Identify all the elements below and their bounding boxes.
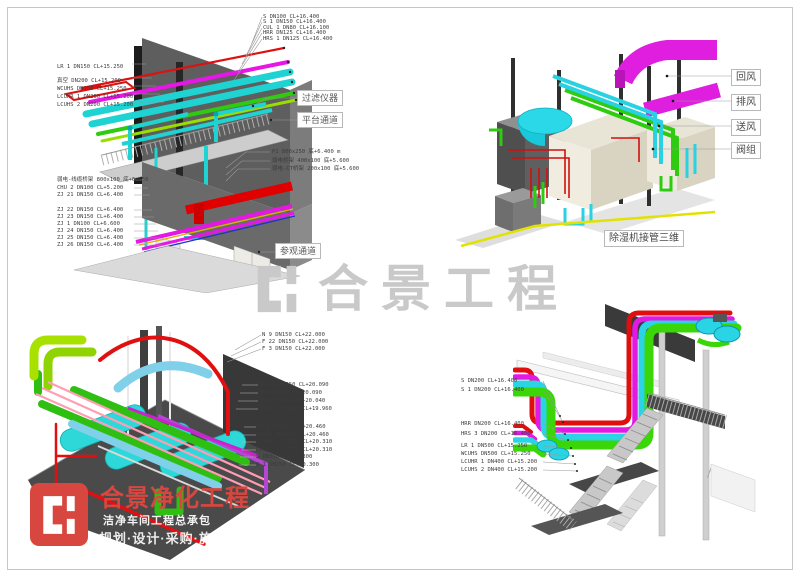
company-logo xyxy=(30,483,88,546)
columns xyxy=(659,326,709,540)
callout-valve-group: 阀组 xyxy=(731,142,761,159)
pipe-label: HRR DN200 CL+16.400 xyxy=(461,421,524,427)
pipe-label: F 3 DN150 CL+22.000 xyxy=(262,346,325,352)
pipe-label: WCUHS DN150 CL+15.250 xyxy=(57,86,127,92)
pipe-label: P1 800x250 底+6.400 m xyxy=(272,149,340,155)
pipe-label: LCUHR 1 DN700 CL+20.310 xyxy=(256,439,332,445)
pipe-label: ZJ 23 DN150 CL+6.400 xyxy=(57,214,123,220)
pipe-label: LCUHR 1 DN200 CL+15.200 xyxy=(57,94,133,100)
pipe-label: ZJ 26 DN150 CL+6.400 xyxy=(57,242,123,248)
pipe-label: LCUHS 2 DN400 CL+15.200 xyxy=(461,467,537,473)
pipe-label: LR 1 DN1000 CL+20.460 xyxy=(256,424,326,430)
company-name: 合景净化工程 xyxy=(100,478,250,513)
pipe-label: HRS 3 DN200 CL+16.400 xyxy=(461,431,531,437)
yellow-green-pipes xyxy=(34,340,92,386)
pipe-label: 弱电-线缆桥架 800x100 底+6.650 xyxy=(57,177,148,183)
pipe-label: LR 1 DN500 CL+15.250 xyxy=(461,443,527,449)
caption-dehumidifier-piping: 除湿机接管三维 xyxy=(604,230,684,247)
pipe-label: WCUHS DN1000 CL+20.460 xyxy=(256,432,329,438)
watermark-text: 合景工程 xyxy=(318,263,570,315)
pipe-label: ZJ 21 DN150 CL+6.400 xyxy=(57,192,123,198)
watermark: 合景工程 xyxy=(250,262,570,316)
pipe-label: ZJ 24 DN150 CL+6.400 xyxy=(57,228,123,234)
pipe-label: ZJ 1 DN100 CL+6.600 xyxy=(57,221,120,227)
pipe-label: HRS 3 DN250 CL+20.090 xyxy=(259,382,329,388)
pipe-label: S DN200 CL+16.400 xyxy=(461,378,517,384)
pipe-label: ZJ 22 DN150 CL+6.400 xyxy=(57,207,123,213)
pipe-label: 弱电-CT桥架 200x100 底+5.600 xyxy=(272,166,359,172)
callout-visitor-walkway: 参观通道 xyxy=(275,243,321,259)
company-subtitle: 洁净车间工程总承包 xyxy=(103,512,211,528)
pipe-label: S DN350 CL+20.300 xyxy=(256,454,312,460)
pipe-label: LCUHS 2 DN700 CL+20.310 xyxy=(256,447,332,453)
company-services: 规划·设计·采购·施工·维保 xyxy=(99,528,260,547)
pipe-label: 弱电桥架 400x100 底+5.600 xyxy=(272,158,349,164)
pipe-label: HRR DN250 CL+20.090 xyxy=(259,390,322,396)
company-logo-icon xyxy=(37,493,81,537)
pipe-label: NXWP 1 DN100 CL+19.960 xyxy=(259,406,332,412)
pipe-label: S 1 DN200 CL+16.400 xyxy=(461,387,524,393)
pipe-label: LR 1 DN150 CL+15.250 xyxy=(57,64,123,70)
pipe-label: CHU 2 DN100 CL+5.200 xyxy=(57,185,123,191)
pipe-label: F 22 DN150 CL+22.000 xyxy=(262,339,328,345)
pipe-label: ZJ 25 DN150 CL+6.400 xyxy=(57,235,123,241)
callout-exhaust-air: 排风 xyxy=(731,94,761,111)
pipe-label: CW 1 DN250 CL+20.040 xyxy=(259,398,325,404)
pipe-label: 真空 DN200 CL+15.200 xyxy=(57,78,121,84)
callout-return-air: 回风 xyxy=(731,69,761,86)
view-stair-riser-3d xyxy=(513,296,798,564)
pipe-label: HRS 1 DN125 CL+16.400 xyxy=(263,36,333,42)
pipe-label: LCUHS 2 DN200 CL+15.200 xyxy=(57,102,133,108)
callout-filter-instrument: 过滤仪器 xyxy=(297,90,343,106)
view-dehumidifier-3d xyxy=(415,18,735,263)
watermark-logo-icon xyxy=(250,262,304,316)
pipe-label: LCUHR 1 DN400 CL+15.200 xyxy=(461,459,537,465)
drawing-sheet: 合景工程 S DN100 CL+16.400 S 1 DN150 CL+16.4… xyxy=(0,0,800,577)
pipe-label: WCUHS DN500 CL+15.250 xyxy=(461,451,531,457)
callout-platform-walkway: 平台通道 xyxy=(297,112,343,128)
pipe-label: N 9 DN150 CL+22.000 xyxy=(262,332,325,338)
callout-supply-air: 送风 xyxy=(731,119,761,136)
pipe-label: S 1 DN250 CL+20.300 xyxy=(256,462,319,468)
